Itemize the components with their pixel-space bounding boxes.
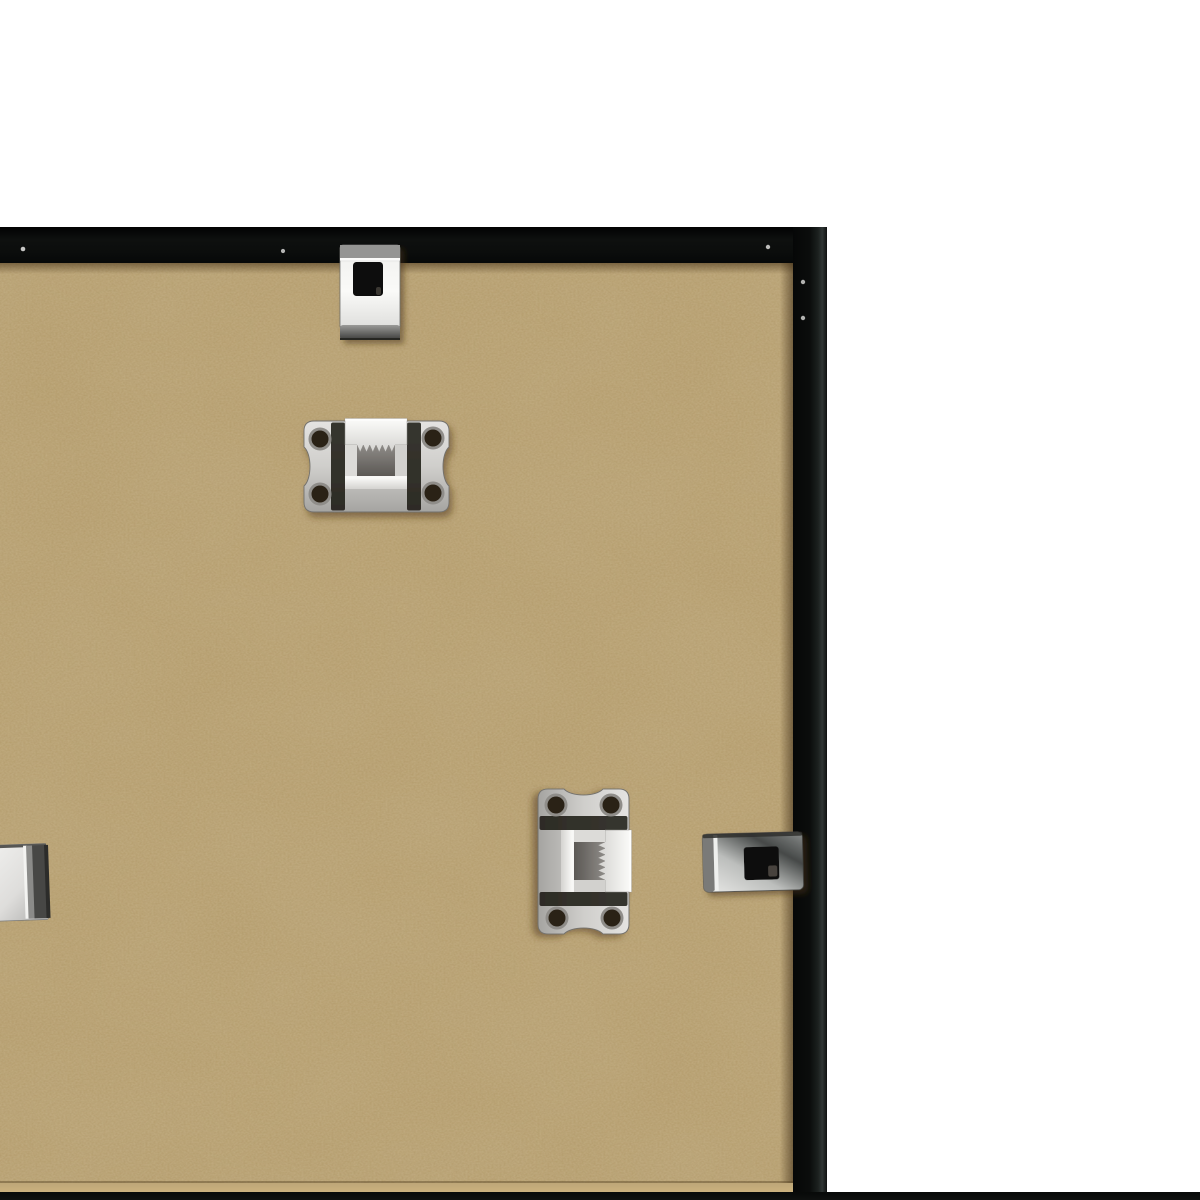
mdf-top-shadow [0,263,793,274]
product-photo [0,0,1200,1200]
mdf-bottom-edge-highlight [0,1183,793,1192]
mdf-texture [0,263,793,1192]
mdf-right-shadow [780,263,793,1192]
mdf-backing-board [0,263,793,1192]
frame-bottom-edge [0,1192,1200,1200]
frame-top-rail [0,227,827,263]
frame-right-rail [793,227,827,1200]
